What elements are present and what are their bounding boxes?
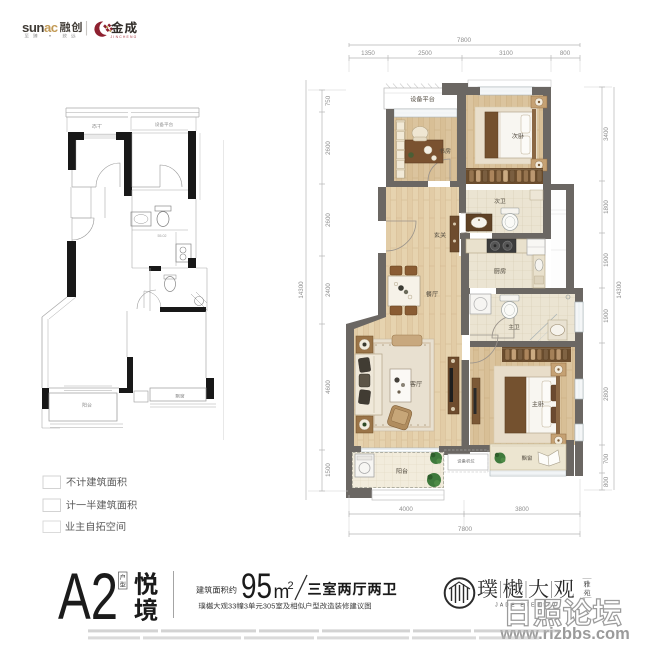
svg-text:4600: 4600 — [325, 380, 332, 394]
svg-text:1900: 1900 — [603, 309, 610, 323]
svg-text:750: 750 — [325, 95, 332, 106]
svg-text:2800: 2800 — [603, 387, 610, 401]
svg-text:1800: 1800 — [603, 200, 610, 214]
svg-text:95: 95 — [241, 567, 272, 606]
svg-text:55.02: 55.02 — [158, 234, 167, 238]
svg-text:JINCHENG: JINCHENG — [111, 35, 138, 39]
svg-text:3400: 3400 — [603, 127, 610, 141]
svg-text:1350: 1350 — [361, 50, 375, 57]
svg-text:7800: 7800 — [457, 37, 472, 44]
svg-text:2: 2 — [288, 580, 294, 592]
svg-text:700: 700 — [603, 453, 610, 464]
svg-text:800: 800 — [603, 476, 610, 487]
svg-text:2600: 2600 — [325, 213, 332, 227]
svg-text:www.rizbbs.com: www.rizbbs.com — [499, 625, 630, 643]
svg-text:14300: 14300 — [298, 281, 305, 299]
svg-text:2600: 2600 — [325, 141, 332, 155]
svg-text:sunac: sunac — [22, 20, 58, 35]
svg-text:3: 3 — [232, 602, 236, 611]
svg-text:2500: 2500 — [418, 50, 432, 57]
svg-text:7800: 7800 — [458, 526, 473, 533]
svg-text:A2: A2 — [58, 559, 118, 633]
svg-text:1900: 1900 — [603, 253, 610, 267]
svg-text:1500: 1500 — [325, 463, 332, 477]
svg-text:3800: 3800 — [515, 506, 529, 513]
svg-text:800: 800 — [560, 50, 571, 57]
svg-text:14300: 14300 — [616, 281, 623, 299]
svg-text:4000: 4000 — [399, 506, 413, 513]
svg-text:3100: 3100 — [499, 50, 513, 57]
svg-text:3: 3 — [244, 602, 248, 611]
svg-text:2400: 2400 — [325, 283, 332, 297]
svg-text:5: 5 — [271, 602, 275, 611]
